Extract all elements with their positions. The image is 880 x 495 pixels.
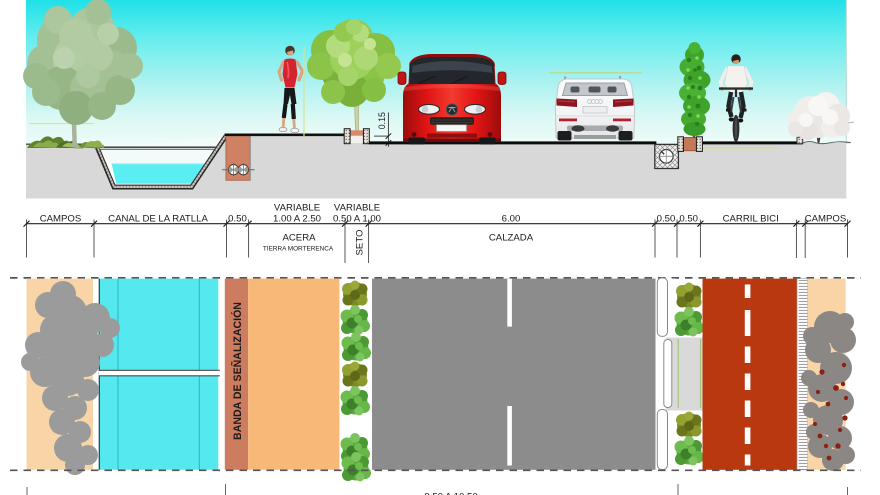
svg-text:CALZADA: CALZADA (489, 233, 534, 244)
svg-text:0.15: 0.15 (377, 112, 387, 129)
svg-text:0.50: 0.50 (228, 213, 247, 224)
svg-text:CARRIL BICI: CARRIL BICI (723, 213, 779, 224)
svg-text:TIERRA MORTERENCA: TIERRA MORTERENCA (263, 246, 334, 253)
svg-text:0.50: 0.50 (657, 213, 676, 224)
svg-text:VARIABLE: VARIABLE (274, 203, 320, 214)
svg-text:SETO: SETO (355, 230, 366, 256)
svg-text:1.00 A 2.50: 1.00 A 2.50 (273, 213, 321, 224)
svg-text:0.50: 0.50 (679, 213, 698, 224)
svg-text:ACERA: ACERA (282, 233, 316, 244)
svg-text:0.50 A 1.00: 0.50 A 1.00 (333, 213, 381, 224)
svg-text:CAMPOS: CAMPOS (805, 213, 847, 224)
svg-text:CANAL DE LA RATLLA: CANAL DE LA RATLLA (108, 213, 208, 224)
svg-text:CAMPOS: CAMPOS (40, 213, 82, 224)
svg-text:6.00: 6.00 (502, 213, 521, 224)
svg-text:VARIABLE: VARIABLE (334, 203, 380, 214)
svg-text:BANDA DE SEÑALIZACIÓN: BANDA DE SEÑALIZACIÓN (231, 302, 244, 440)
svg-text:9.50 A 10.50: 9.50 A 10.50 (424, 492, 477, 495)
